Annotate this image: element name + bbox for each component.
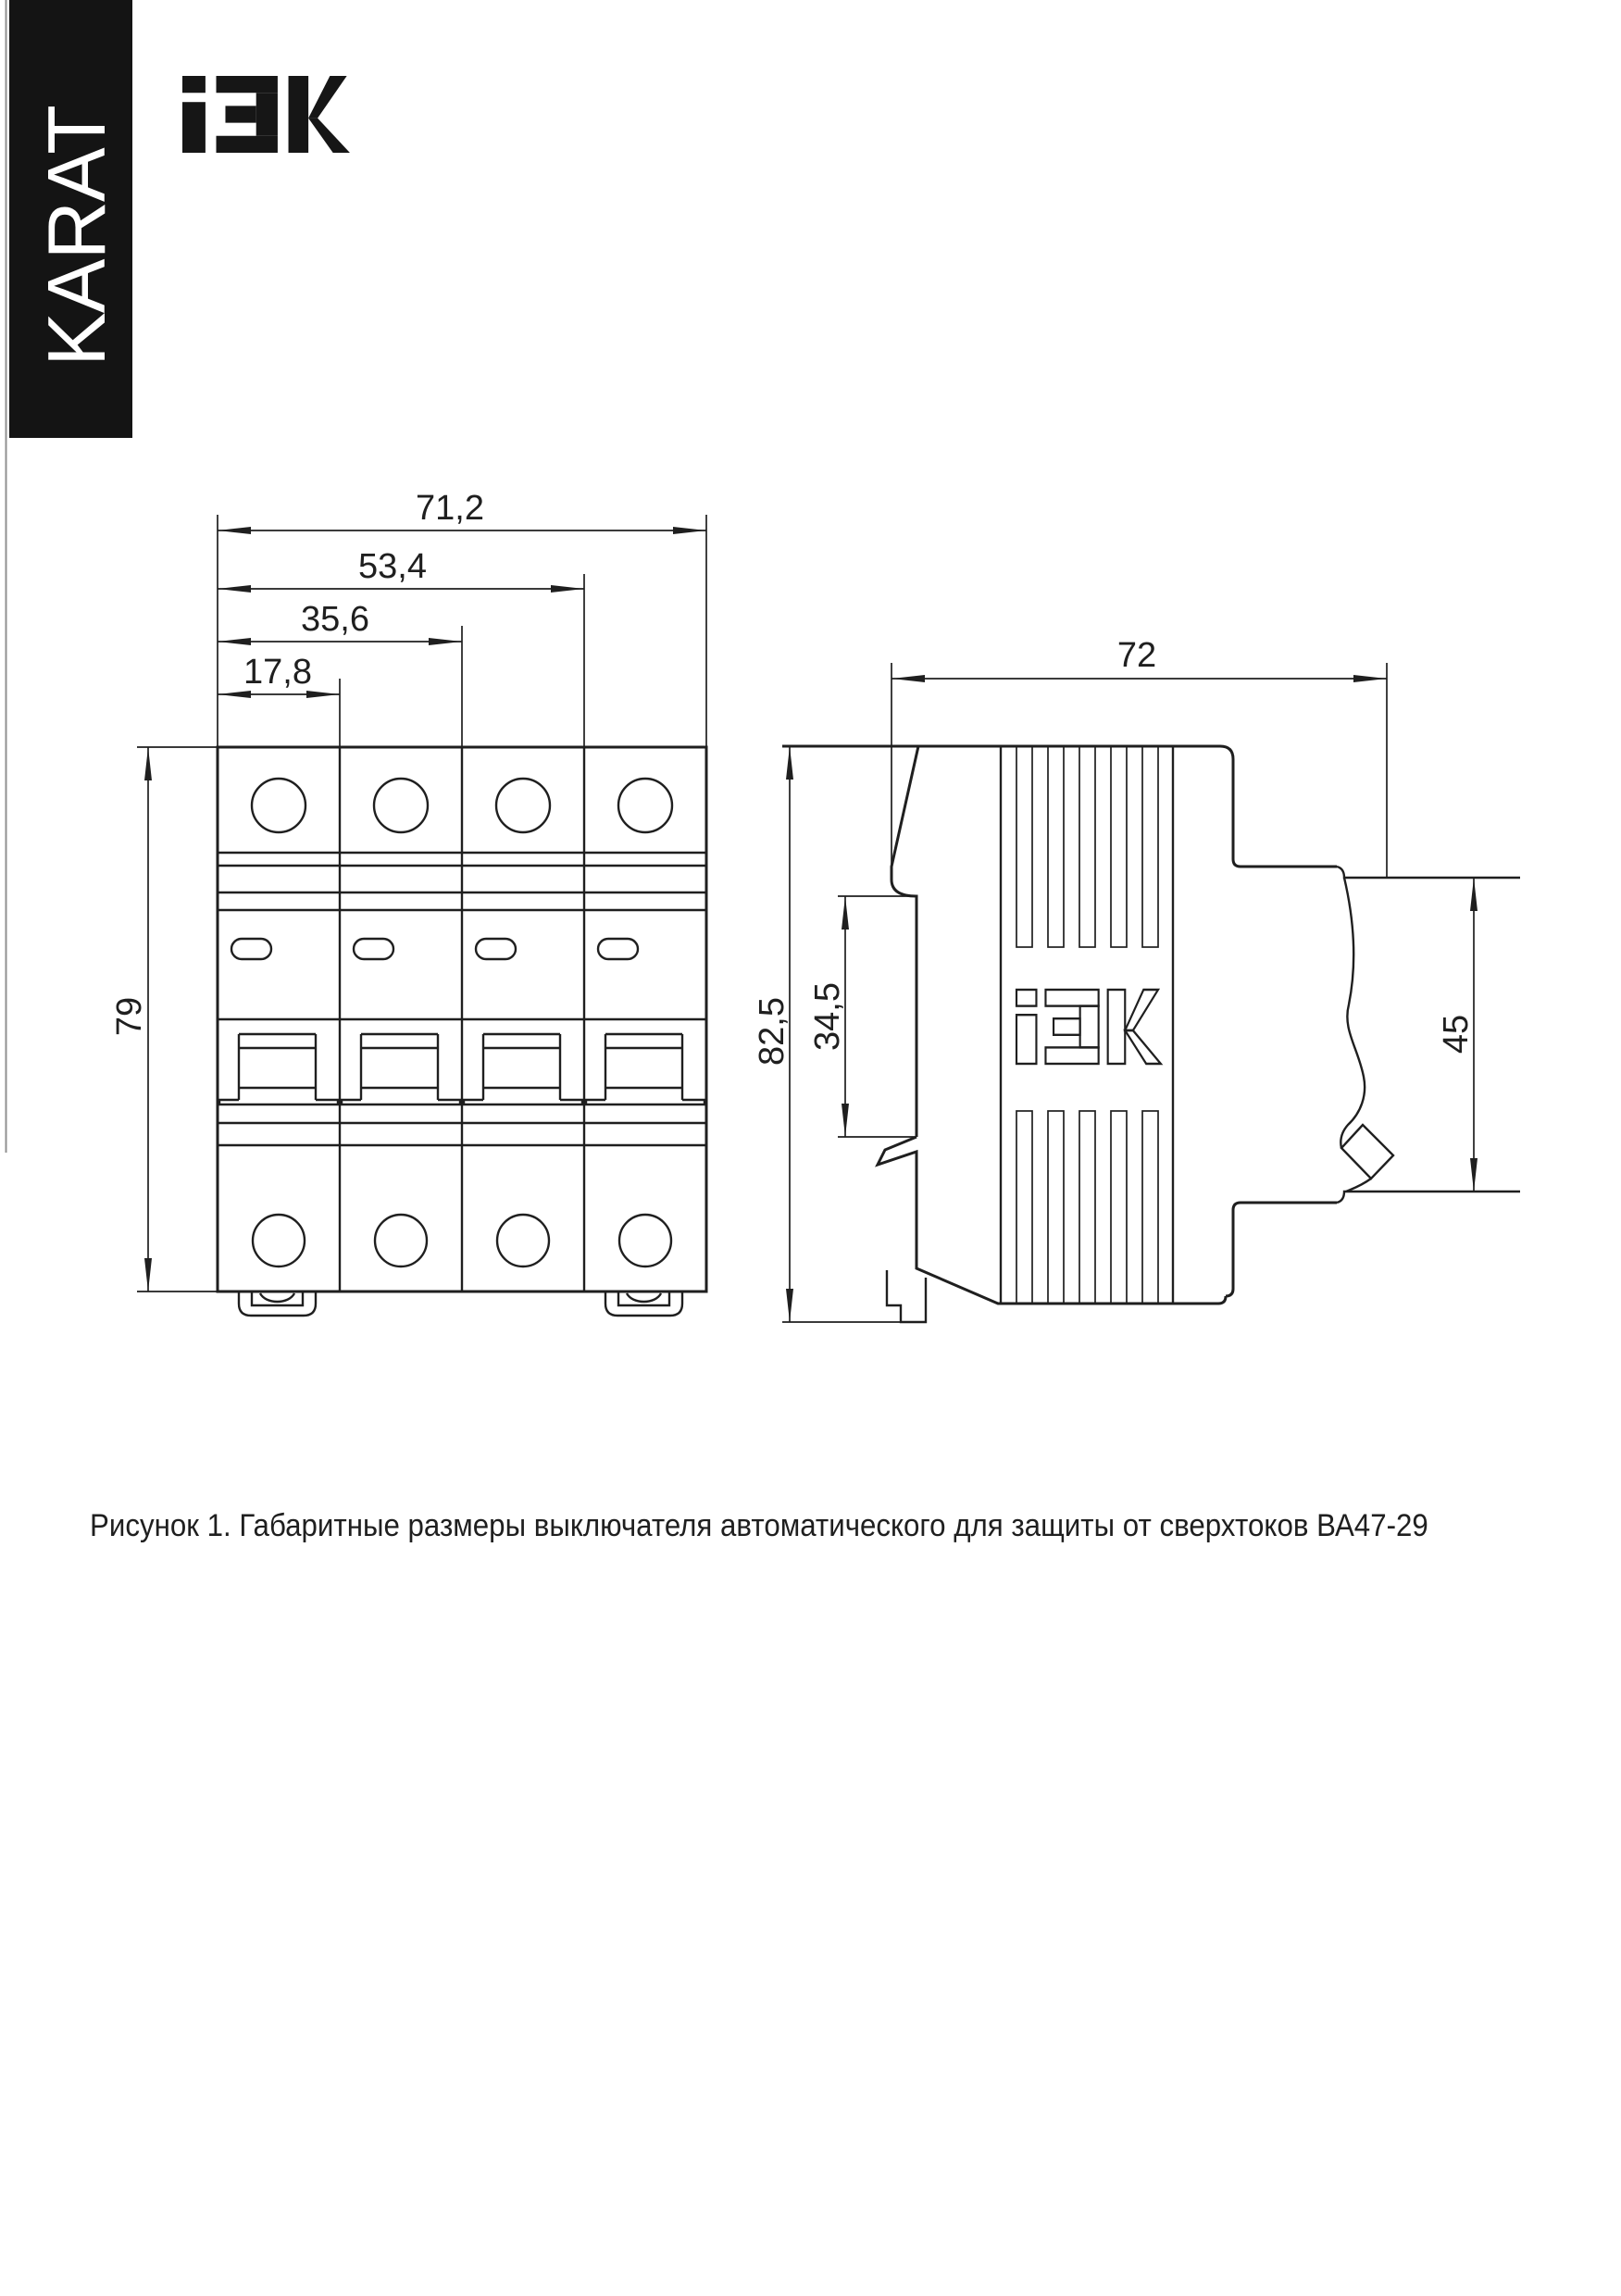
figure-caption: Рисунок 1. Габаритные размеры выключател… [90,1507,1428,1543]
toggle-break-line-end [1346,1179,1371,1192]
rib-panel-edges [1001,746,1173,1304]
dim-label-height-total: 82,5 [753,997,792,1066]
karat-banner: KARAT [9,0,132,438]
din-foot [887,1270,926,1322]
side-top-outline [782,746,1337,867]
iek-logo [182,76,350,153]
banner-label: KARAT [31,106,122,367]
front-view: 71,2 53,4 35,6 17,8 79 [110,489,706,1316]
side-bottom-outline [1226,1203,1337,1296]
dim-label-din-recess: 34,5 [808,982,847,1051]
front-extension-lines [137,515,706,1291]
technical-drawing: KARAT [0,0,1621,2296]
dim-label-front-height-45: 45 [1437,1015,1476,1054]
dim-label-total-width: 71,2 [416,489,484,528]
dim-label-1-module: 17,8 [243,653,312,692]
lower-ledge [1337,1192,1520,1203]
vent-ribs-lower [1016,1111,1158,1304]
vent-ribs-upper [1016,746,1158,947]
din-clip-left [239,1292,316,1316]
dim-label-2-modules: 35,6 [301,600,369,639]
din-clip-right [605,1292,682,1316]
depth-extension-lines [892,663,1387,878]
upper-ledge [1337,867,1520,878]
dim-label-3-modules: 53,4 [358,547,427,586]
toggle-lever-tip [1341,1125,1393,1179]
iek-logo-embossed [1016,990,1161,1064]
toggle-break-line [1340,878,1365,1148]
dim-label-front-height: 79 [110,997,149,1036]
recess-extension-lines [838,896,916,1137]
document-page: IEK [0,0,1621,2296]
dim-label-depth: 72 [1117,636,1156,675]
side-view: 72 82,5 34,5 45 [753,636,1520,1322]
